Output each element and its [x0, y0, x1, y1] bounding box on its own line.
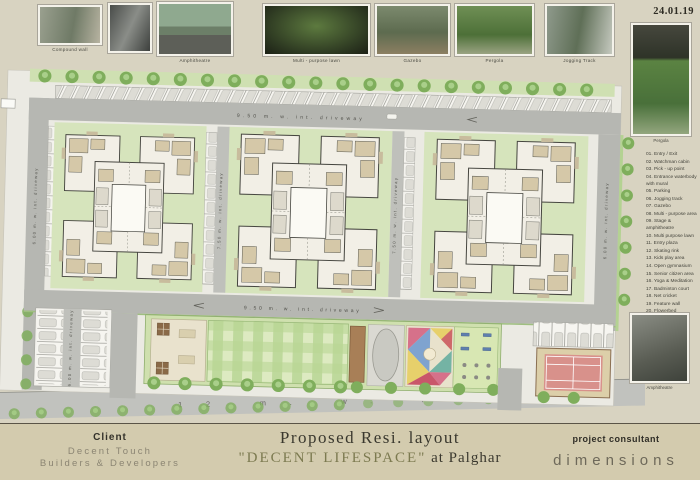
photo-caption: Pergola	[455, 58, 534, 63]
legend-item: 11. Entry plaza	[646, 241, 698, 248]
photo-jogging-track-image	[545, 4, 614, 56]
client-section: Client Decent Touch Builders & Developer…	[10, 432, 210, 470]
kids-play-area	[405, 326, 455, 388]
photo-compound-wall-image	[38, 5, 102, 45]
senior-citizen-area	[150, 319, 207, 381]
legend-item: 19. Feature wall	[646, 302, 698, 309]
site-plan: 12 m. w. road Entry / Exit Entry / Exit	[0, 55, 645, 425]
photo-caption: Jogging Track	[545, 58, 614, 63]
side-photo-amphitheatre-image	[630, 313, 689, 383]
skating-rink	[367, 325, 405, 387]
badminton-block	[532, 322, 614, 399]
legend-item: 10. Multi purpose lawn	[646, 234, 698, 241]
project-title-line1: Proposed Resi. layout	[210, 428, 530, 448]
photo-amphitheatre-lawn: Amphitheatre	[157, 2, 233, 63]
right-driveway: 6.00 m. w. int. driveway	[593, 134, 628, 331]
legend-item: 09. Stage & amphitheatre	[646, 219, 698, 233]
legend-list: 01. Entry / Exit 02. Watchman cabin 03. …	[646, 152, 698, 317]
drawing-date: 24.01.19	[634, 6, 694, 17]
legend-item: 06. Jogging track	[646, 197, 698, 204]
amenity-band	[144, 315, 502, 393]
project-location: at Palghar	[426, 450, 501, 466]
photo-caption: Amphitheatre	[630, 385, 689, 390]
photo-compound-wall: Compound wall	[38, 5, 102, 52]
legend-item: 05. Parking	[646, 189, 698, 196]
legend-item: 07. Gazebo	[646, 204, 698, 211]
client-label: Client	[10, 432, 210, 443]
client-name-line2: Builders & Developers	[10, 458, 210, 470]
project-title-section: Proposed Resi. layout "DECENT LIFESPACE"…	[210, 428, 530, 467]
photo-pergola-image	[455, 4, 534, 56]
car	[387, 114, 397, 119]
title-block: Client Decent Touch Builders & Developer…	[0, 423, 700, 480]
inner-driveway-1: 7.50 m. w. int. driveway	[202, 126, 229, 293]
legend-item: 01. Entry / Exit	[646, 152, 698, 159]
site: 9.50 m. w. int. driveway 6.00 m. w. int.…	[0, 68, 630, 413]
project-title-line2: "DECENT LIFESPACE" at Palghar	[210, 450, 530, 467]
legend-item: 16. Yoga & Meditation	[646, 279, 698, 286]
client-name-line1: Decent Touch	[10, 446, 210, 458]
legend-item: 15. Senior citizen area	[646, 272, 698, 279]
legend-item: 18. Net cricket	[646, 294, 698, 301]
photo-multi-purpose-lawn-image	[263, 4, 370, 56]
photo-walkway	[108, 3, 152, 55]
legend-item: 04. Entrance waterbody with mural	[646, 175, 698, 189]
side-photo-pergola: Pergola	[631, 23, 691, 143]
legend-item: 17. Badminton court	[646, 287, 698, 294]
consultant-label: project consultant	[540, 434, 692, 444]
stage	[349, 326, 365, 382]
photo-multi-purpose-lawn: Multi - purpose lawn	[263, 4, 370, 63]
photo-gazebo-image	[375, 4, 450, 56]
photo-caption: Multi - purpose lawn	[263, 58, 370, 63]
entry-connector-right	[497, 368, 522, 411]
consultant-section: project consultant dimensions	[540, 434, 692, 469]
legend-item: 12. Skating rink	[646, 249, 698, 256]
photo-caption: Pergola	[631, 138, 691, 143]
photo-pergola: Pergola	[455, 4, 534, 63]
inner-driveway-2: 7.50 m. w. int. driveway	[388, 131, 415, 298]
consultant-name: dimensions	[540, 452, 692, 469]
side-photo-amphitheatre: Amphitheatre	[630, 313, 689, 390]
parking-block: 6.00 m. w. int. driveway	[34, 308, 122, 388]
photo-jogging-track: Jogging Track	[545, 4, 614, 63]
legend-item: 14. Open gymnasium	[646, 264, 698, 271]
legend-item: 13. Kids play area	[646, 256, 698, 263]
open-gymnasium	[453, 327, 499, 389]
legend-item: 03. Pick - up point	[646, 167, 698, 174]
parking-row-right	[533, 322, 614, 348]
photo-caption: Compound wall	[38, 47, 102, 52]
sheet: 12 m. w. road Entry / Exit Entry / Exit	[0, 0, 700, 479]
project-name: "DECENT LIFESPACE"	[238, 450, 426, 466]
side-photo-pergola-image	[631, 23, 691, 136]
entry-connector-left	[109, 313, 137, 399]
photo-walkway-image	[108, 3, 152, 53]
multi-purpose-lawn	[207, 320, 349, 385]
photo-caption: Amphitheatre	[157, 58, 233, 63]
photo-amphitheatre-lawn-image	[157, 2, 233, 56]
gate-detail	[1, 99, 15, 108]
legend-item: 08. Multi - purpose area	[646, 212, 698, 219]
photo-gazebo: Gazebo	[375, 4, 450, 63]
legend-item: 02. Watchman cabin	[646, 160, 698, 167]
photo-caption: Gazebo	[375, 58, 450, 63]
building-clusters	[50, 122, 588, 302]
